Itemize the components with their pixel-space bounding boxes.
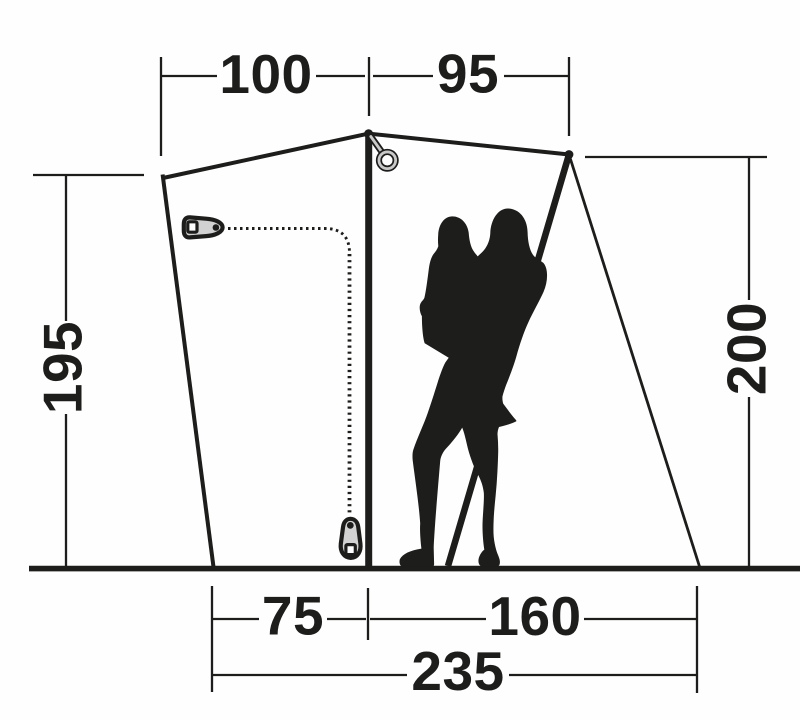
svg-text:160: 160 <box>488 585 581 647</box>
svg-text:200: 200 <box>716 302 778 395</box>
svg-text:195: 195 <box>32 321 94 414</box>
svg-text:100: 100 <box>219 43 312 105</box>
svg-text:75: 75 <box>262 585 324 647</box>
svg-text:95: 95 <box>437 43 499 105</box>
svg-text:235: 235 <box>411 640 504 702</box>
